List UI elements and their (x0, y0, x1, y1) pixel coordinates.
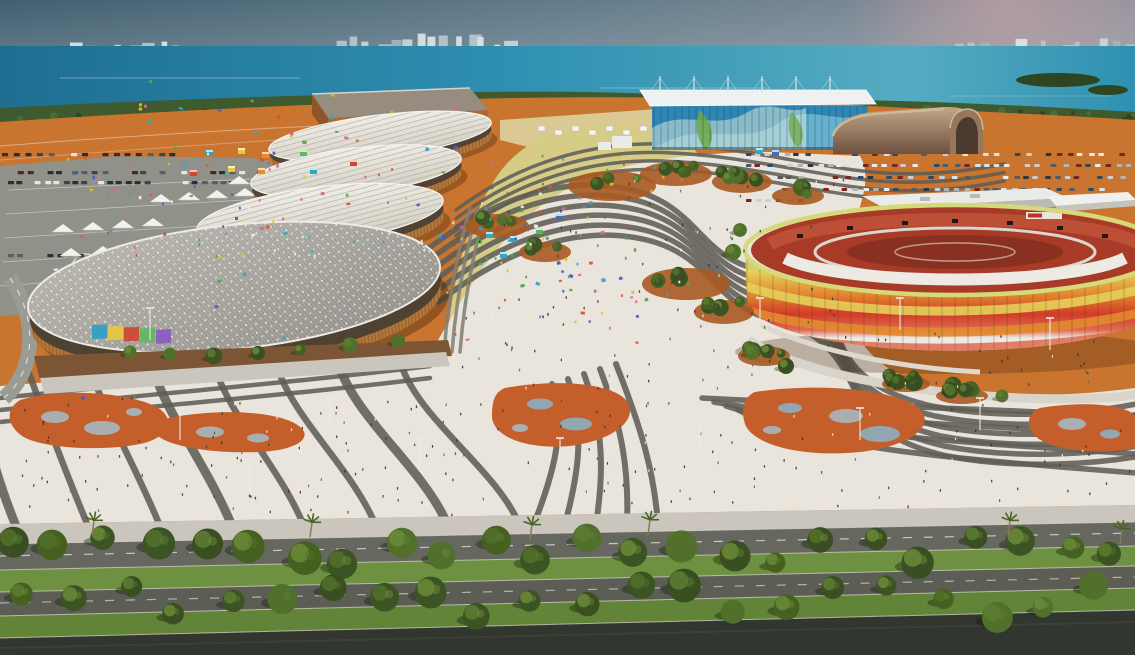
person (906, 503, 907, 506)
person (276, 417, 277, 420)
kiosk-roof (486, 232, 493, 234)
person (48, 451, 49, 454)
person (41, 477, 42, 480)
person (308, 485, 309, 488)
person (662, 176, 664, 179)
person (481, 202, 482, 205)
person (173, 463, 174, 466)
parked-car (746, 164, 752, 167)
person (127, 484, 128, 487)
person (321, 478, 322, 481)
person (107, 232, 109, 235)
parked-car (939, 176, 945, 179)
person (552, 309, 554, 312)
person (754, 477, 755, 480)
person (526, 276, 527, 279)
person (791, 465, 792, 468)
person (1044, 460, 1045, 463)
kiosk-roof (228, 166, 235, 168)
patch-spot (860, 426, 900, 442)
person (268, 162, 270, 165)
person (764, 326, 765, 329)
parked-car (785, 153, 791, 156)
person (1067, 490, 1068, 493)
parked-car (1064, 164, 1070, 167)
parked-car (924, 188, 930, 191)
service-building (598, 142, 611, 150)
person (1089, 453, 1090, 456)
person (490, 316, 492, 319)
parked-car (82, 153, 88, 156)
person (727, 254, 728, 257)
person (523, 224, 525, 227)
person (256, 399, 257, 402)
tree-highlight (717, 167, 723, 173)
person (650, 190, 652, 193)
person (845, 336, 846, 339)
person (454, 244, 455, 247)
parked-car (1099, 188, 1105, 191)
person (426, 454, 427, 457)
person (1129, 470, 1130, 473)
tree-highlight (735, 225, 742, 232)
person (1017, 488, 1018, 491)
person (445, 472, 446, 475)
tree-speckle (103, 532, 110, 539)
person (587, 217, 589, 220)
parked-car (965, 176, 971, 179)
parked-car (767, 164, 773, 167)
crowd-cluster (163, 232, 166, 236)
person (447, 445, 448, 448)
person (720, 434, 721, 437)
person (107, 415, 108, 418)
person (443, 415, 444, 418)
person (145, 447, 146, 450)
person (642, 263, 643, 266)
tree-speckle (944, 594, 950, 600)
person (70, 490, 71, 493)
person (1007, 357, 1008, 360)
person (388, 232, 390, 235)
person (635, 300, 637, 303)
person (364, 176, 366, 179)
person (216, 255, 218, 258)
parked-car (770, 188, 776, 191)
person (734, 270, 735, 273)
person (371, 423, 372, 426)
person (508, 211, 509, 214)
tree-highlight (689, 162, 694, 167)
person (1082, 450, 1083, 453)
parked-car (754, 164, 760, 167)
parked-car (833, 176, 839, 179)
person (33, 484, 34, 487)
parked-car (1003, 176, 1009, 179)
person (730, 236, 731, 239)
person (542, 155, 544, 158)
parked-car (778, 176, 784, 179)
person (694, 230, 696, 233)
person (518, 298, 519, 301)
person (684, 465, 685, 468)
person (336, 406, 337, 409)
kiosk-roof (300, 150, 307, 152)
person (530, 243, 532, 246)
parked-car (37, 153, 43, 156)
crowd-cluster (356, 139, 359, 142)
person (168, 163, 170, 166)
person (566, 296, 567, 299)
person (22, 474, 23, 477)
person (807, 504, 808, 507)
person (495, 257, 497, 260)
parked-car (1069, 188, 1075, 191)
person (893, 374, 894, 377)
person (443, 454, 444, 457)
person (610, 262, 612, 265)
person (619, 425, 620, 428)
patch-spot (512, 424, 528, 432)
person (1026, 335, 1027, 338)
person (462, 366, 463, 369)
parked-car (148, 153, 154, 156)
person (302, 427, 303, 430)
person (411, 408, 412, 411)
person (755, 449, 756, 452)
person (841, 489, 842, 492)
person (259, 199, 261, 202)
tree-highlight (660, 163, 667, 170)
parked-car (183, 181, 189, 184)
person (138, 440, 139, 443)
person (473, 312, 475, 315)
parked-car (975, 164, 981, 167)
person (885, 339, 886, 342)
parked-car (983, 153, 989, 156)
crowd-cluster (241, 253, 244, 257)
parked-car (886, 176, 892, 179)
person (120, 231, 122, 234)
tree-speckle (684, 577, 694, 587)
person (466, 317, 467, 320)
person (635, 470, 636, 473)
parked-car (1032, 176, 1038, 179)
person (409, 432, 410, 435)
crowd-cluster (619, 277, 623, 280)
mural-panel (140, 328, 155, 343)
person (751, 373, 752, 376)
crowd-cluster (610, 183, 614, 186)
person (604, 490, 605, 493)
person (479, 240, 480, 243)
crowd-cluster (214, 305, 218, 308)
person (452, 479, 453, 482)
person (936, 382, 937, 385)
parked-car (1045, 176, 1051, 179)
person (386, 437, 387, 440)
person (207, 153, 209, 156)
person (651, 499, 652, 502)
tree-speckle (442, 549, 450, 557)
person (492, 187, 493, 190)
person (639, 290, 640, 293)
person (1000, 335, 1001, 338)
parked-car (845, 176, 851, 179)
person (687, 283, 689, 286)
patch-spot (126, 408, 142, 416)
tree-speckle (1073, 542, 1080, 549)
person (510, 295, 512, 298)
crowd-cluster (174, 147, 178, 150)
crowd-cluster (441, 235, 445, 239)
tree-speckle (402, 535, 411, 544)
parked-car (844, 164, 850, 167)
person (387, 201, 389, 204)
parked-car (935, 188, 941, 191)
person (654, 468, 655, 471)
tree-speckle (333, 581, 341, 589)
person (561, 359, 562, 362)
person (878, 339, 879, 342)
person (816, 180, 817, 183)
person (649, 202, 650, 205)
person (67, 158, 69, 161)
person (671, 500, 672, 503)
person (768, 319, 769, 322)
person (506, 343, 507, 346)
person (303, 175, 305, 178)
shore-tree (1087, 111, 1092, 116)
person (833, 183, 834, 186)
person (241, 459, 242, 462)
shore-tree (1114, 114, 1120, 120)
person (830, 310, 831, 313)
tree-highlight (655, 279, 659, 283)
parked-car (1057, 153, 1063, 156)
parked-car (823, 188, 829, 191)
person (802, 437, 803, 440)
parked-car (1055, 176, 1061, 179)
parked-car (135, 181, 141, 184)
person (764, 465, 765, 468)
person (796, 467, 797, 470)
person (269, 168, 271, 171)
person (483, 498, 484, 501)
tree-speckle (918, 555, 928, 565)
person (751, 312, 752, 315)
person (671, 282, 672, 285)
person (1086, 371, 1087, 374)
parked-car (808, 164, 814, 167)
beach-tent (640, 126, 647, 131)
person (291, 428, 292, 431)
person (465, 301, 467, 304)
person (561, 400, 562, 403)
tree-speckle (876, 533, 883, 540)
tree-speckle (305, 550, 315, 560)
person (561, 226, 562, 229)
person (832, 433, 833, 436)
person (636, 177, 638, 180)
person (668, 402, 669, 405)
beach-tent (538, 126, 545, 131)
person (335, 412, 336, 415)
person (214, 432, 215, 435)
person (712, 451, 713, 454)
person (631, 502, 632, 505)
person (589, 320, 591, 323)
person (243, 506, 244, 509)
person (694, 310, 695, 313)
person (198, 244, 200, 247)
person (518, 417, 519, 420)
person (463, 454, 464, 457)
person (1093, 340, 1094, 343)
person (81, 235, 83, 238)
person (270, 511, 271, 514)
person (239, 207, 241, 210)
person (935, 333, 936, 336)
person (696, 170, 698, 173)
person (811, 226, 812, 229)
tree-speckle (1094, 578, 1103, 587)
tree-speckle (496, 533, 505, 542)
person (505, 342, 506, 345)
person (575, 231, 576, 234)
tree-speckle (159, 535, 169, 545)
person (718, 202, 719, 205)
parked-car (898, 176, 904, 179)
shore-tree (1131, 114, 1134, 117)
crowd-cluster (368, 147, 372, 150)
person (421, 501, 422, 504)
tree-highlight (724, 173, 730, 179)
person (1077, 353, 1078, 356)
parked-car (53, 181, 59, 184)
person (502, 409, 503, 412)
person (614, 354, 615, 357)
tree-speckle (248, 538, 258, 548)
crowd-cluster (539, 193, 542, 196)
person (999, 499, 1000, 502)
person (423, 249, 425, 252)
person (855, 458, 856, 461)
person (507, 192, 508, 195)
kiosk-roof (500, 252, 507, 254)
person (528, 229, 529, 232)
tree-speckle (208, 536, 217, 545)
parked-car (1095, 164, 1101, 167)
person (604, 320, 605, 323)
person (979, 349, 980, 352)
parked-car (1015, 153, 1021, 156)
person (227, 190, 229, 193)
planting-mound (465, 214, 529, 238)
crowd-cluster (557, 261, 561, 265)
person (597, 457, 598, 460)
person (511, 349, 512, 352)
person (446, 291, 448, 294)
person (908, 505, 909, 508)
person (765, 206, 766, 209)
person (1009, 432, 1010, 435)
tree-speckle (733, 606, 740, 613)
person (225, 233, 227, 236)
parked-car (944, 188, 950, 191)
parked-car (116, 181, 122, 184)
crowd-cluster (320, 192, 324, 196)
parked-car (1034, 164, 1040, 167)
person (423, 243, 425, 246)
person (162, 203, 164, 206)
parked-car (974, 188, 980, 191)
person (1080, 365, 1081, 368)
island (1088, 85, 1128, 95)
person (347, 449, 348, 452)
parked-car (212, 181, 218, 184)
tree-speckle (587, 531, 596, 540)
person (344, 470, 345, 473)
person (122, 398, 123, 401)
tree-speckle (587, 598, 594, 605)
tree-speckle (431, 585, 441, 595)
person (562, 158, 564, 161)
person (601, 312, 603, 315)
person (1089, 493, 1090, 496)
tree-speckle (735, 548, 744, 557)
parked-car (984, 164, 990, 167)
parked-car (912, 164, 918, 167)
parked-car (1119, 153, 1125, 156)
tree-boulevard (0, 505, 1135, 655)
person (412, 414, 413, 417)
person (497, 428, 498, 431)
person (1045, 356, 1046, 359)
person (142, 474, 143, 477)
person (491, 165, 493, 168)
parked-car (1025, 164, 1031, 167)
pavilion-arch-opening (956, 117, 978, 154)
parked-car (81, 181, 87, 184)
person (1088, 380, 1089, 383)
person (213, 436, 214, 439)
parked-car (8, 181, 14, 184)
person (317, 495, 318, 498)
person (79, 456, 80, 459)
person (770, 356, 771, 359)
parked-car (14, 153, 20, 156)
person (461, 237, 463, 240)
person (1106, 482, 1107, 485)
person (646, 405, 647, 408)
parked-car (900, 164, 906, 167)
person (300, 198, 302, 201)
person (586, 490, 587, 493)
person (456, 439, 457, 442)
tree-highlight (736, 297, 741, 302)
parked-car (1023, 176, 1028, 179)
tree-speckle (173, 608, 179, 614)
parked-car (45, 181, 51, 184)
person (231, 193, 233, 196)
person (504, 224, 505, 227)
person (713, 461, 714, 464)
person (47, 481, 48, 484)
person (542, 183, 543, 186)
person (222, 412, 223, 415)
person (255, 497, 256, 500)
